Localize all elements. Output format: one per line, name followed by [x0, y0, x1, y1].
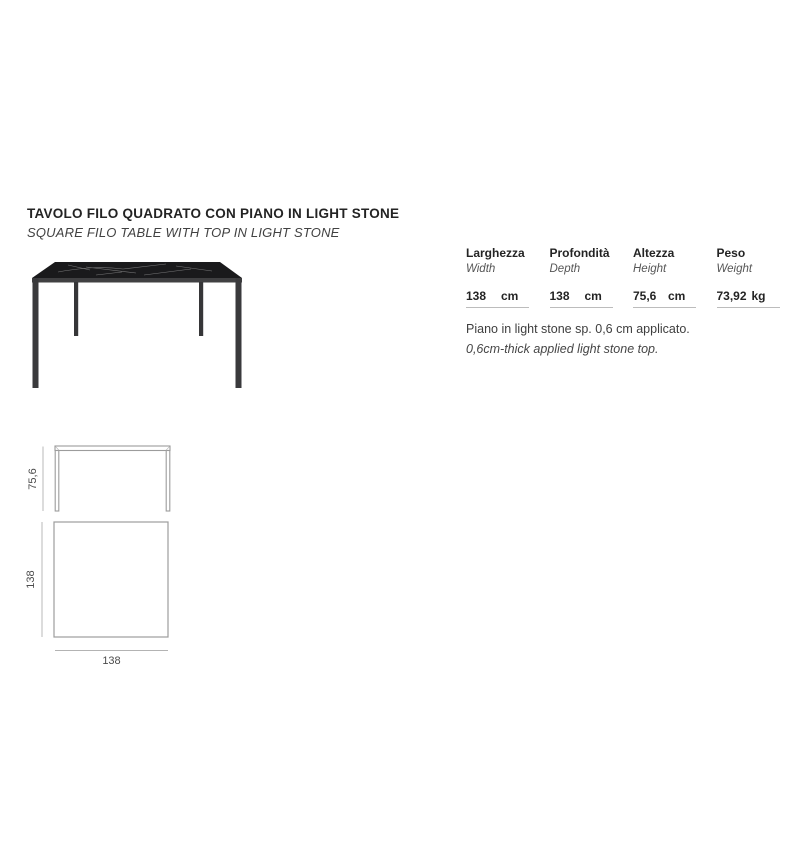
spec-label-it: Peso: [717, 246, 800, 260]
title-block: TAVOLO FILO QUADRATO CON PIANO IN LIGHT …: [27, 206, 399, 240]
dimension-drawings: 75,6 138 138: [15, 440, 200, 675]
spec-col-width: Larghezza Width 138 cm: [466, 246, 550, 308]
table-leg-back-right: [199, 282, 203, 336]
spec-label-en: Height: [633, 263, 717, 277]
spec-col-depth: Profondità Depth 138 cm: [550, 246, 634, 308]
spec-value: 138 cm: [466, 289, 529, 308]
product-photo-table: [28, 256, 248, 394]
table-apron: [32, 278, 242, 283]
material-note-italian: Piano in light stone sp. 0,6 cm applicat…: [466, 322, 796, 337]
spec-label-en: Depth: [550, 263, 634, 277]
front-elevation-drawing: [55, 446, 170, 511]
table-leg-back-left: [74, 282, 78, 336]
table-leg-front-left: [33, 278, 39, 388]
spec-value: 138 cm: [550, 289, 613, 308]
spec-label-it: Profondità: [550, 246, 634, 260]
spec-table: Larghezza Width 138 cm Profondità Depth …: [466, 246, 786, 308]
spec-value: 73,92 kg: [717, 289, 780, 308]
spec-value-number: 73,92: [717, 289, 752, 303]
material-note-english: 0,6cm-thick applied light stone top.: [466, 342, 796, 357]
spec-columns: Larghezza Width 138 cm Profondità Depth …: [466, 246, 786, 308]
spec-value-unit: cm: [668, 289, 685, 303]
spec-sheet-page: TAVOLO FILO QUADRATO CON PIANO IN LIGHT …: [0, 0, 800, 863]
spec-label-en: Weight: [717, 263, 800, 277]
height-dimension-label: 75,6: [27, 468, 39, 489]
material-note: Piano in light stone sp. 0,6 cm applicat…: [466, 322, 796, 357]
spec-col-weight: Peso Weight 73,92 kg: [717, 246, 800, 308]
spec-label-it: Altezza: [633, 246, 717, 260]
plan-view-square: [54, 522, 168, 637]
spec-value-unit: cm: [585, 289, 602, 303]
spec-label-it: Larghezza: [466, 246, 550, 260]
width-dimension-label: 138: [102, 655, 120, 667]
spec-label-en: Width: [466, 263, 550, 277]
product-title-italian: TAVOLO FILO QUADRATO CON PIANO IN LIGHT …: [27, 206, 399, 223]
spec-value-number: 75,6: [633, 289, 668, 303]
product-title-english: SQUARE FILO TABLE WITH TOP IN LIGHT STON…: [27, 225, 399, 240]
spec-value-number: 138: [466, 289, 501, 303]
table-top-marble: [32, 262, 242, 278]
spec-value-unit: kg: [752, 289, 766, 303]
spec-col-height: Altezza Height 75,6 cm: [633, 246, 717, 308]
spec-value: 75,6 cm: [633, 289, 696, 308]
table-leg-front-right: [236, 278, 242, 388]
spec-value-unit: cm: [501, 289, 518, 303]
depth-dimension-label: 138: [25, 570, 37, 588]
spec-value-number: 138: [550, 289, 585, 303]
